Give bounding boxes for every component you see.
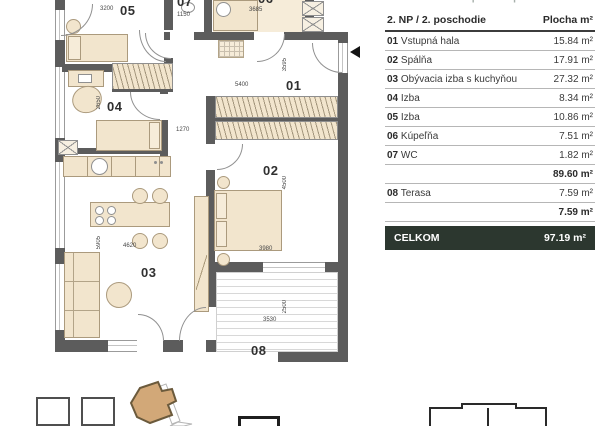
room-label-08: 08 [251,343,266,358]
plate [107,216,116,225]
pillow [149,122,160,149]
room-number: 07 [387,150,398,161]
wall-segment [164,0,173,30]
sofa-back-line [73,253,74,337]
dimension: 3685 [249,7,262,13]
cabinet-mark [196,255,207,290]
sofa-cushion-line [65,281,99,282]
pillow [216,221,227,247]
room-area: 1.82 m² [559,150,593,161]
sliding-door [263,262,325,272]
wall-segment [206,96,215,144]
elevation-outline-partial [238,416,280,426]
room-label-07: 07 [177,0,192,9]
pillow [216,193,227,219]
plate [107,206,116,215]
floor-plan: 01 02 03 04 05 06 07 08 3200 1150 3685 5… [0,0,385,426]
floor-header-label: 2. NP / 2. poschodie [387,14,486,26]
door-arc [138,314,164,341]
room-name: Izba [401,112,420,123]
chair [152,233,168,249]
room-area: 10.86 m² [554,112,593,123]
site-building-outline [81,397,115,426]
chair [152,188,168,204]
clipped-title: 4-IZBOVÝ BYT | 2. NP | ČÍSLO BYTU 2.05 [385,0,595,8]
dryer [302,17,324,32]
kitchen-counter [63,156,171,177]
laptop [78,74,92,83]
total-value: 97.19 m² [544,232,586,244]
window [108,340,137,352]
cabinet [58,140,78,155]
room-number: 08 [387,188,398,199]
building-elevation-outline [424,398,552,426]
site-plan-strip [0,378,600,426]
table-row: 05 Izba 10.86 m² [385,108,595,127]
area-table: 4-IZBOVÝ BYT | 2. NP | ČÍSLO BYTU 2.05 2… [385,0,595,250]
wardrobe [112,63,173,90]
room-label-01: 01 [286,78,301,93]
room-area: 7.51 m² [559,131,593,142]
stove-burner [160,161,163,164]
floorplan-page: { "header": { "clipped_title": "4-IZBOVÝ… [0,0,600,426]
room-area: 27.32 m² [554,74,593,85]
door-arc [217,144,243,170]
door-arc [179,307,206,341]
wall-segment [160,89,168,94]
site-building-highlighted [118,378,198,426]
entrance-arrow-icon [350,46,360,58]
room-label-04: 04 [107,99,122,114]
room-name: Vstupná hala [401,36,459,47]
kitchen-sink [91,158,108,175]
room-name: Terasa [401,188,431,199]
wall-segment [194,32,254,40]
area-header-label: Plocha m² [543,14,593,26]
table-row: 07 WC 1.82 m² [385,146,595,165]
wall-segment [206,340,216,352]
washbasin [216,2,231,17]
total-label: CELKOM [394,232,440,244]
room-number: 05 [387,112,398,123]
wall-segment [325,262,348,272]
tv-cabinet [194,196,209,312]
dimension: 3980 [259,246,272,252]
dimension: 2500 [282,300,288,313]
room-label-06: 06 [258,0,273,6]
clipped-title-text: 4-IZBOVÝ BYT | 2. NP | ČÍSLO BYTU 2.05 [385,0,595,3]
table-row: 03 Obývacia izba s kuchyňou 27.32 m² [385,70,595,89]
table-row: 04 Izba 8.34 m² [385,89,595,108]
room-name: Obývacia izba s kuchyňou [401,74,517,85]
pillow [68,36,81,60]
table-row: 02 Spálňa 17.91 m² [385,51,595,70]
room-number: 03 [387,74,398,85]
room-area: 17.91 m² [554,55,593,66]
dimension: 1270 [176,127,189,133]
chair [132,188,148,204]
wardrobe [215,96,338,118]
wall-segment [278,352,348,362]
interior-subtotal-row: 89.60 m² [385,165,595,184]
wall-segment [55,340,108,352]
total-row: CELKOM 97.19 m² [385,226,595,250]
sofa [64,252,100,338]
table-row: 01 Vstupná hala 15.84 m² [385,32,595,51]
room-number: 02 [387,55,398,66]
room-name: WC [401,150,418,161]
wall-segment [163,340,183,352]
dimension: 4500 [282,176,288,189]
room-area: 15.84 m² [554,36,593,47]
room-area: 7.59 m² [559,188,593,199]
dimension: 2650 [96,96,102,109]
wardrobe [215,121,338,140]
room-area: 8.34 m² [559,93,593,104]
room-name: Spálňa [401,55,432,66]
room-label-02: 02 [263,163,278,178]
stove-burner [154,161,157,164]
room-number: 04 [387,93,398,104]
table-header: 2. NP / 2. poschodie Plocha m² [385,8,595,32]
wall-segment [204,0,212,33]
nightstand [217,253,230,266]
room-name: Kúpeľňa [401,131,438,142]
dimension: 3200 [100,6,113,12]
room-label-05: 05 [120,3,135,18]
dimension: 5905 [96,236,102,249]
dimension: 3595 [282,58,288,71]
interior-subtotal-value: 89.60 m² [553,169,593,180]
entrance-door-arc [312,43,342,73]
terrace-subtotal-value: 7.59 m² [559,207,593,218]
site-building-outline [36,397,70,426]
terrace-decking [216,272,338,352]
dimension: 1150 [177,12,190,18]
wall-segment [338,73,348,362]
nightstand [217,176,230,189]
room-name: Izba [401,93,420,104]
sofa-cushion-line [65,310,99,311]
dimension: 3530 [263,317,276,323]
door-arc [257,34,285,62]
washing-machine [302,1,324,16]
plate [95,206,104,215]
doormat [218,40,244,58]
room-number: 06 [387,131,398,142]
door-arc [61,4,93,36]
room-label-03: 03 [141,265,156,280]
dimension: 4620 [123,243,136,249]
dimension: 5400 [235,82,248,88]
table-row: 06 Kúpeľňa 7.51 m² [385,127,595,146]
wall-segment [206,262,263,272]
terrace-subtotal-row: 7.59 m² [385,203,595,222]
door-arc [130,92,160,120]
wall-segment [55,40,65,67]
terrace-row: 08 Terasa 7.59 m² [385,184,595,203]
plate [95,216,104,225]
coffee-table [106,282,132,308]
room-number: 01 [387,36,398,47]
